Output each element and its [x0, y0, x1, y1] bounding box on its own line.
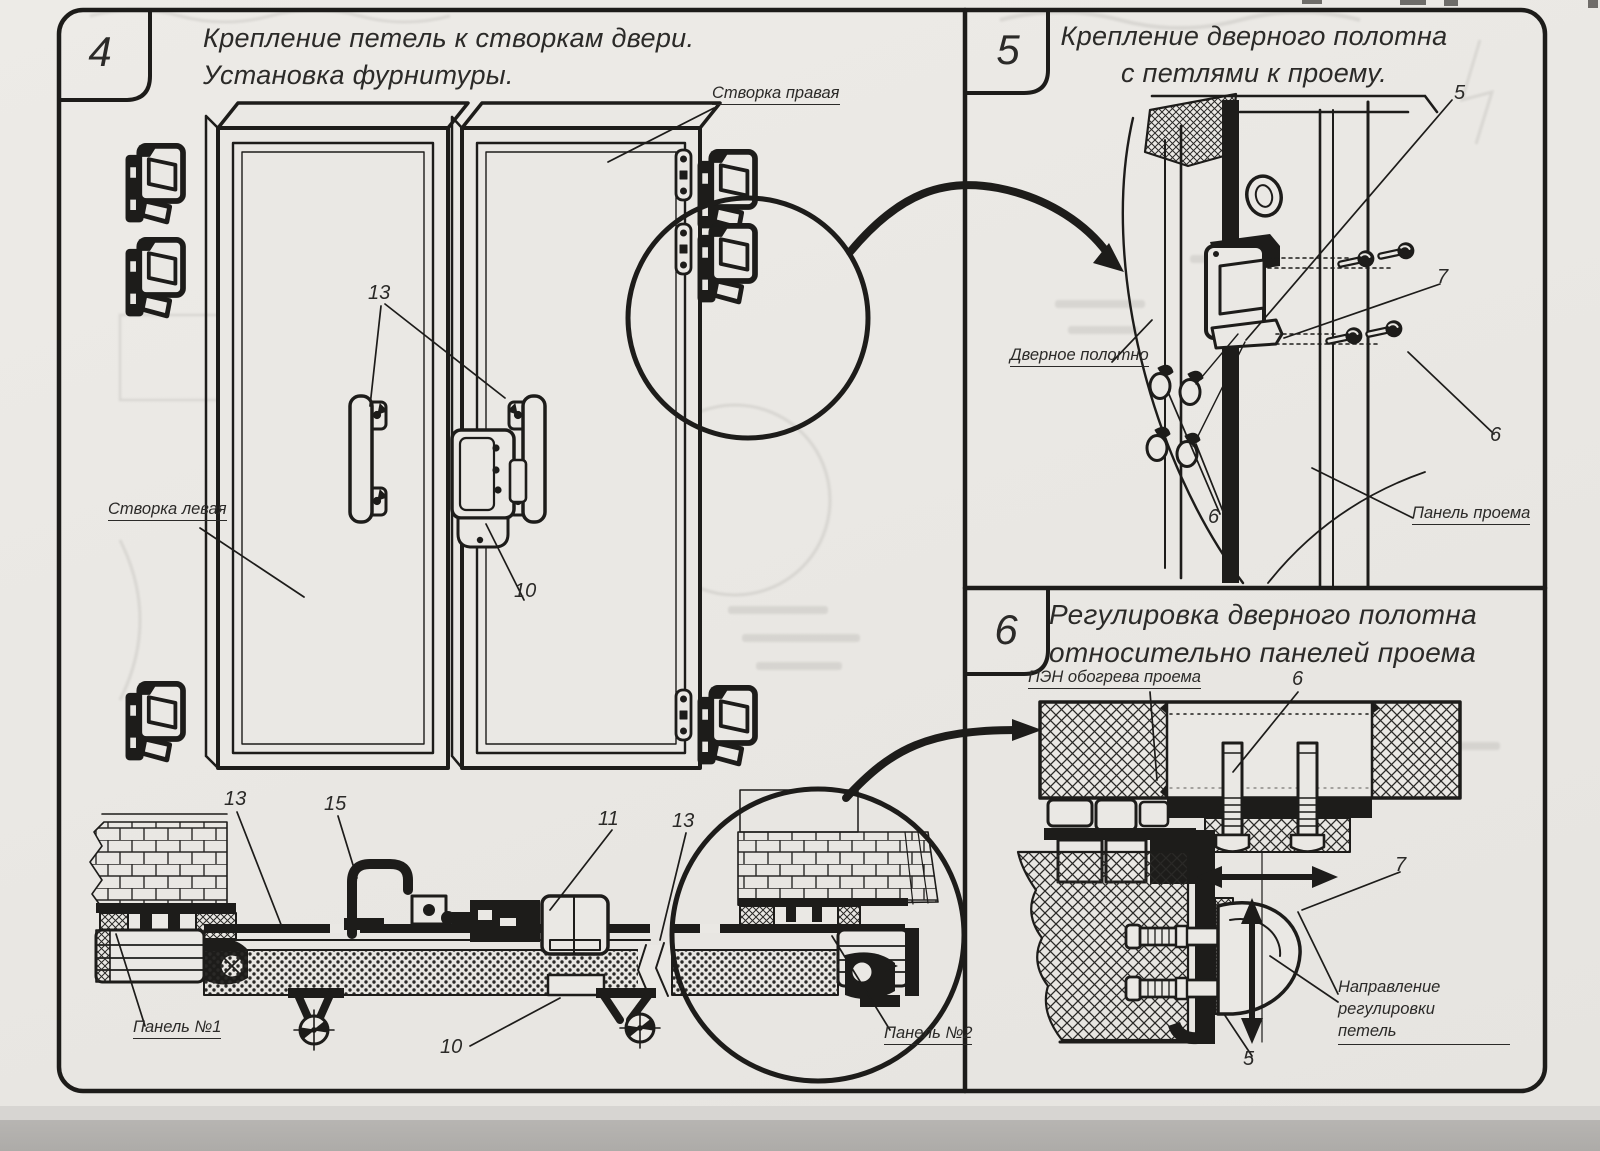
callout-13-section: 13	[224, 788, 246, 811]
callout-5-panel5: 5	[1454, 82, 1465, 105]
callout-6-right-panel5: 6	[1490, 424, 1501, 447]
step-number-6: 6	[976, 606, 1036, 654]
callout-13b-section: 13	[672, 810, 694, 833]
callout-11-section: 11	[598, 808, 619, 831]
label-adjustment-direction-line1: Направление регулировки	[1338, 978, 1440, 1018]
label-door-leaf: Дверное полотно	[1010, 346, 1149, 367]
panel4-title-line2: Установка фурнитуры.	[203, 57, 694, 94]
panel6-title-line2: относительно панелей проема	[1049, 634, 1469, 672]
panel4-title: Крепление петель к створкам двери. Устан…	[203, 20, 694, 94]
label-adjustment-direction-line2: петель	[1338, 1022, 1396, 1040]
scanner-edge-strip-light	[0, 1106, 1600, 1120]
label-panel1: Панель №1	[133, 1018, 221, 1039]
callout-7-panel5: 7	[1437, 266, 1448, 289]
panel4-title-line1: Крепление петель к створкам двери.	[203, 20, 694, 57]
scanned-assembly-drawing-page: 4 5 6 Крепление петель к створкам двери.…	[0, 0, 1600, 1151]
label-pen-heater: ПЭН обогрева проема	[1028, 668, 1201, 689]
hinge-assembly	[1206, 234, 1282, 348]
callout-13-handles: 13	[368, 282, 390, 305]
label-door-left: Створка левая	[108, 500, 227, 521]
step-number-5: 5	[978, 26, 1038, 74]
step-number-4: 4	[70, 28, 130, 76]
panel5-title-line2: с петлями к проему.	[1044, 55, 1464, 92]
scan-edge-marks	[1302, 0, 1598, 8]
panel6-title: Регулировка дверного полотна относительн…	[1049, 596, 1469, 672]
label-door-right: Створка правая	[712, 84, 840, 105]
label-panel2: Панель №2	[884, 1024, 972, 1045]
callout-10-section: 10	[440, 1036, 462, 1059]
scanner-edge-strip-dark	[0, 1120, 1600, 1151]
callout-6-panel6: 6	[1292, 668, 1303, 691]
callout-7-panel6: 7	[1395, 854, 1406, 877]
label-opening-panel: Панель проема	[1412, 504, 1530, 525]
label-adjustment-direction: Направление регулировки петель	[1338, 976, 1510, 1045]
callout-5-panel6: 5	[1243, 1048, 1254, 1071]
callout-10-latch: 10	[514, 580, 536, 603]
panel5-title-line1: Крепление дверного полотна	[1044, 18, 1464, 55]
panel6-title-line1: Регулировка дверного полотна	[1049, 596, 1469, 634]
panel5-title: Крепление дверного полотна с петлями к п…	[1044, 18, 1464, 92]
callout-6-bottom-panel5: 6	[1208, 506, 1219, 529]
panel5-leader-lines	[1112, 100, 1494, 518]
callout-15-section: 15	[324, 793, 346, 816]
